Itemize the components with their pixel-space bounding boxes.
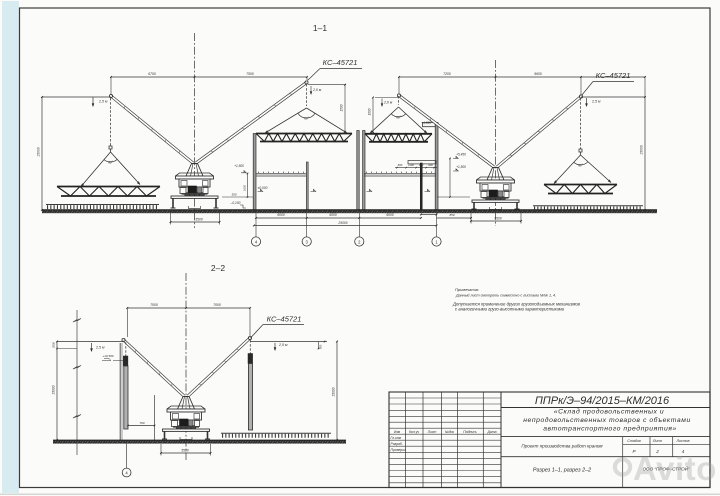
svg-text:Кол.уч: Кол.уч [409, 430, 419, 434]
svg-text:60°: 60° [396, 116, 402, 120]
svg-text:60°: 60° [304, 117, 310, 121]
svg-text:–0,150: –0,150 [230, 201, 241, 205]
svg-text:15000: 15000 [640, 145, 644, 155]
svg-text:+4,550: +4,550 [421, 121, 431, 125]
svg-text:9600: 9600 [534, 72, 542, 76]
svg-text:850: 850 [449, 213, 454, 217]
svg-text:Данный лист смотреть совместно: Данный лист смотреть совместно с листами… [455, 294, 556, 298]
svg-text:5500: 5500 [195, 218, 203, 222]
svg-text:25000: 25000 [337, 221, 347, 225]
svg-text:Разраб.: Разраб. [391, 442, 403, 446]
svg-text:15000: 15000 [332, 387, 336, 396]
svg-text:500: 500 [319, 344, 323, 349]
svg-text:6000: 6000 [277, 213, 285, 217]
svg-text:5500: 5500 [181, 449, 189, 453]
svg-text:600: 600 [428, 163, 433, 167]
svg-text:Гл.инж: Гл.инж [391, 436, 402, 440]
svg-text:Avito: Avito [633, 450, 717, 487]
svg-text:КС–45721: КС–45721 [596, 71, 631, 80]
svg-text:Изм: Изм [394, 430, 401, 434]
svg-text:Подпись: Подпись [463, 430, 477, 434]
svg-text:800: 800 [398, 163, 403, 167]
svg-text:«Склад продовольственных и: «Склад продовольственных и [554, 408, 665, 416]
svg-text:Стадия: Стадия [627, 439, 641, 443]
svg-text:6700: 6700 [148, 72, 156, 76]
svg-text:Примечания:: Примечания: [455, 287, 479, 292]
svg-text:7500: 7500 [246, 72, 254, 76]
svg-text:Лист: Лист [652, 439, 662, 443]
svg-text:+10,500: +10,500 [103, 354, 114, 358]
svg-text:КС–45721: КС–45721 [323, 58, 358, 67]
svg-text:Проверил: Проверил [391, 448, 407, 452]
svg-text:6000: 6000 [329, 213, 337, 217]
svg-text:№док: №док [445, 430, 454, 434]
svg-text:2,5 м: 2,5 м [312, 88, 322, 92]
svg-text:КС–45721: КС–45721 [267, 315, 302, 324]
svg-text:2500: 2500 [52, 342, 56, 349]
svg-text:+5,450: +5,450 [456, 153, 466, 157]
svg-text:15000: 15000 [37, 147, 41, 157]
svg-text:300: 300 [426, 210, 431, 214]
svg-text:1–1: 1–1 [313, 23, 327, 33]
svg-text:900: 900 [419, 163, 424, 167]
svg-text:Дата: Дата [487, 430, 497, 434]
svg-text:5500: 5500 [494, 217, 502, 221]
svg-text:1650: 1650 [243, 184, 247, 191]
svg-text:300: 300 [231, 193, 236, 197]
svg-text:1000: 1000 [368, 108, 372, 115]
svg-text:15000: 15000 [52, 385, 56, 394]
svg-text:Лист: Лист [427, 430, 437, 434]
svg-text:2,0 м: 2,0 м [383, 101, 393, 105]
svg-text:7000: 7000 [213, 303, 221, 307]
svg-text:1100: 1100 [408, 163, 414, 167]
svg-text:700: 700 [139, 421, 144, 425]
svg-text:непродовольственных товаров с: непродовольственных товаров с объектами [523, 416, 691, 424]
svg-text:2–2: 2–2 [211, 263, 225, 273]
svg-text:2,5 м: 2,5 м [95, 346, 105, 350]
svg-text:7200: 7200 [443, 72, 451, 76]
svg-text:Листов: Листов [675, 439, 689, 443]
svg-text:+1,500: +1,500 [456, 165, 466, 169]
svg-text:ППРк/Э–94/2015–КМ/2016: ППРк/Э–94/2015–КМ/2016 [535, 395, 670, 407]
svg-text:7000: 7000 [150, 303, 158, 307]
svg-text:60°: 60° [108, 161, 114, 165]
svg-text:с аналогичными грузо-высотными: с аналогичными грузо-высотными характери… [455, 307, 565, 312]
svg-text:2,5 м: 2,5 м [98, 100, 108, 104]
svg-text:60°: 60° [578, 164, 584, 168]
svg-text:Разрез 1–1, разрез 2–2: Разрез 1–1, разрез 2–2 [533, 468, 591, 474]
svg-text:Проект производства работ кран: Проект производства работ краном [521, 444, 603, 449]
svg-text:1500: 1500 [340, 104, 344, 111]
svg-text:+1,500: +1,500 [234, 164, 244, 168]
svg-text:автотранспортного предприятия»: автотранспортного предприятия» [543, 424, 677, 432]
svg-text:2,5 м: 2,5 м [278, 343, 288, 347]
svg-text:6000: 6000 [386, 213, 394, 217]
svg-text:2,5 м: 2,5 м [591, 100, 601, 104]
svg-text:±0,000: ±0,000 [258, 186, 268, 190]
